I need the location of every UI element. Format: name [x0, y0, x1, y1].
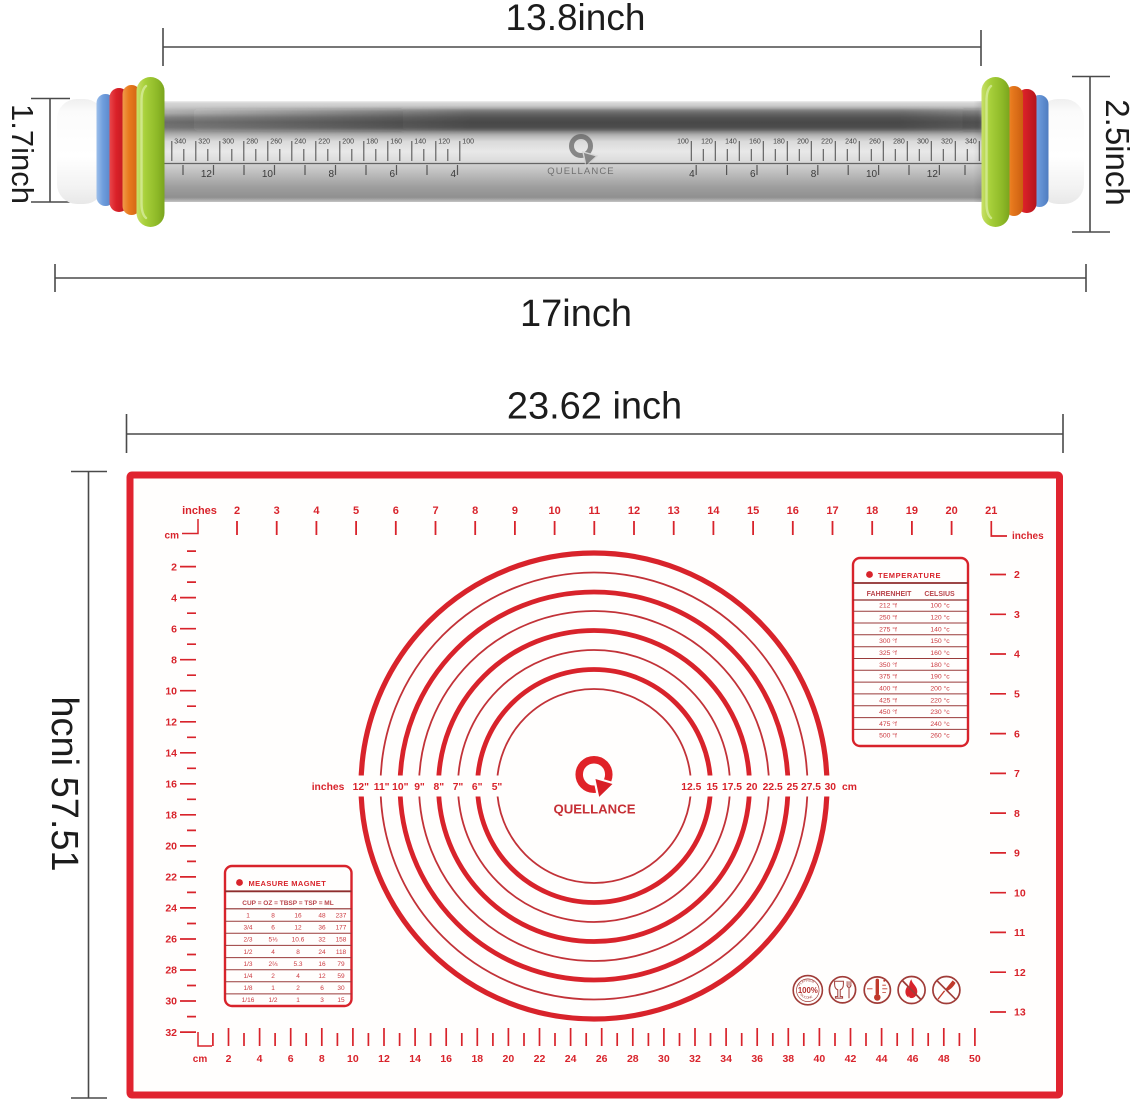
svg-text:5: 5: [1014, 689, 1020, 701]
svg-text:1/2: 1/2: [243, 949, 252, 956]
svg-text:177: 177: [336, 925, 347, 932]
svg-text:375 °f: 375 °f: [879, 673, 897, 681]
svg-text:24: 24: [318, 949, 326, 956]
svg-text:4: 4: [313, 505, 320, 517]
svg-text:24: 24: [165, 903, 177, 915]
svg-text:9": 9": [414, 782, 425, 793]
svg-text:26: 26: [596, 1053, 608, 1065]
svg-text:14: 14: [707, 505, 720, 517]
svg-text:CUP = OZ = TBSP = TSP = ML: CUP = OZ = TBSP = TSP = ML: [242, 900, 333, 907]
svg-text:5": 5": [492, 782, 503, 793]
svg-text:20: 20: [746, 782, 758, 793]
svg-text:160: 160: [390, 139, 402, 146]
svg-text:10: 10: [866, 169, 878, 180]
svg-text:30: 30: [337, 985, 345, 992]
svg-text:320: 320: [198, 139, 210, 146]
svg-text:23.62 inch: 23.62 inch: [507, 386, 682, 428]
svg-text:30: 30: [658, 1053, 670, 1065]
svg-text:120: 120: [438, 139, 450, 146]
svg-text:7": 7": [453, 782, 464, 793]
svg-text:14: 14: [409, 1053, 421, 1065]
svg-text:inches: inches: [182, 505, 217, 517]
svg-text:6: 6: [320, 985, 324, 992]
svg-text:1/4: 1/4: [243, 973, 252, 980]
svg-text:340: 340: [965, 139, 977, 146]
svg-text:475 °f: 475 °f: [879, 720, 897, 728]
svg-text:150 °c: 150 °c: [930, 637, 950, 645]
svg-text:100 °c: 100 °c: [930, 602, 950, 610]
svg-text:14: 14: [165, 748, 177, 760]
svg-text:22.5: 22.5: [763, 782, 783, 793]
svg-text:10: 10: [347, 1053, 359, 1065]
svg-text:5⅓: 5⅓: [268, 937, 278, 944]
svg-text:2.5inch: 2.5inch: [1099, 99, 1133, 205]
svg-text:8": 8": [433, 782, 444, 793]
svg-text:10": 10": [392, 782, 408, 793]
svg-text:18: 18: [866, 505, 878, 517]
svg-text:100: 100: [462, 139, 474, 146]
svg-text:200: 200: [342, 139, 354, 146]
svg-text:15: 15: [337, 997, 345, 1004]
svg-text:1: 1: [246, 912, 250, 919]
svg-text:140: 140: [725, 139, 737, 146]
svg-text:12: 12: [294, 925, 302, 932]
svg-text:12.5: 12.5: [681, 782, 701, 793]
svg-text:260: 260: [869, 139, 881, 146]
svg-text:17inch: 17inch: [520, 293, 632, 335]
svg-text:10: 10: [1014, 887, 1026, 899]
svg-text:400 °f: 400 °f: [879, 684, 897, 692]
svg-text:48: 48: [318, 912, 326, 919]
svg-text:4: 4: [450, 169, 456, 180]
svg-text:11": 11": [374, 782, 390, 793]
svg-text:12: 12: [1014, 967, 1026, 979]
svg-text:200 °c: 200 °c: [930, 684, 950, 692]
svg-text:QUELLANCE: QUELLANCE: [547, 166, 614, 177]
svg-text:6": 6": [472, 782, 483, 793]
svg-text:25: 25: [787, 782, 799, 793]
svg-text:500 °f: 500 °f: [879, 732, 897, 740]
svg-text:CELSIUS: CELSIUS: [924, 591, 955, 598]
svg-text:100: 100: [677, 139, 689, 146]
svg-text:5: 5: [353, 505, 359, 517]
svg-text:42: 42: [845, 1053, 857, 1065]
svg-text:2: 2: [271, 973, 275, 980]
svg-text:240 °c: 240 °c: [930, 720, 950, 728]
svg-text:inches: inches: [312, 782, 345, 793]
svg-text:16: 16: [787, 505, 799, 517]
svg-text:15: 15: [747, 505, 759, 517]
svg-text:120 °c: 120 °c: [930, 614, 950, 622]
svg-text:30: 30: [165, 996, 177, 1008]
svg-text:34: 34: [720, 1053, 732, 1065]
svg-text:32: 32: [689, 1053, 701, 1065]
svg-text:1: 1: [296, 997, 300, 1004]
svg-text:cm: cm: [842, 782, 857, 793]
svg-text:12: 12: [927, 169, 939, 180]
svg-text:FAHRENHEIT: FAHRENHEIT: [867, 591, 912, 598]
svg-text:450 °f: 450 °f: [879, 708, 897, 716]
svg-text:4: 4: [296, 973, 300, 980]
svg-text:2: 2: [296, 985, 300, 992]
svg-text:40: 40: [814, 1053, 826, 1065]
svg-text:425 °f: 425 °f: [879, 696, 897, 704]
svg-text:8: 8: [171, 654, 177, 666]
svg-text:4: 4: [1014, 649, 1020, 661]
svg-text:50: 50: [969, 1053, 981, 1065]
svg-text:20: 20: [945, 505, 957, 517]
svg-text:220 °c: 220 °c: [930, 696, 950, 704]
svg-text:300: 300: [917, 139, 929, 146]
svg-text:275 °f: 275 °f: [879, 625, 897, 633]
svg-text:21: 21: [985, 505, 997, 517]
svg-text:48: 48: [938, 1053, 950, 1065]
svg-text:11: 11: [1014, 927, 1025, 939]
svg-text:2: 2: [234, 505, 240, 517]
svg-text:8: 8: [271, 912, 275, 919]
svg-text:300: 300: [222, 139, 234, 146]
svg-text:16: 16: [440, 1053, 452, 1065]
svg-text:230 °c: 230 °c: [930, 708, 950, 716]
svg-text:6: 6: [271, 925, 275, 932]
svg-text:59: 59: [337, 973, 345, 980]
svg-text:3: 3: [320, 997, 324, 1004]
svg-text:120: 120: [701, 139, 713, 146]
svg-text:2: 2: [226, 1053, 232, 1065]
svg-text:30: 30: [825, 782, 837, 793]
svg-text:12: 12: [378, 1053, 390, 1065]
svg-text:28: 28: [627, 1053, 639, 1065]
svg-text:22: 22: [165, 872, 177, 884]
svg-text:6: 6: [393, 505, 399, 517]
svg-text:260 °c: 260 °c: [930, 732, 950, 740]
svg-text:240: 240: [294, 139, 306, 146]
svg-text:16: 16: [318, 961, 326, 968]
svg-text:180: 180: [366, 139, 378, 146]
svg-text:212 °f: 212 °f: [879, 602, 897, 610]
svg-text:240: 240: [845, 139, 857, 146]
svg-text:220: 220: [318, 139, 330, 146]
svg-text:160 °c: 160 °c: [930, 649, 950, 657]
svg-text:8: 8: [1014, 808, 1020, 820]
svg-text:44: 44: [876, 1053, 888, 1065]
svg-text:18: 18: [165, 810, 177, 822]
svg-text:280: 280: [246, 139, 258, 146]
svg-text:8: 8: [319, 1053, 325, 1065]
svg-text:350 °f: 350 °f: [879, 661, 897, 669]
svg-text:QUELLANCE: QUELLANCE: [554, 803, 636, 817]
svg-text:7: 7: [432, 505, 438, 517]
svg-text:12": 12": [353, 782, 369, 793]
svg-text:280: 280: [893, 139, 905, 146]
svg-text:250 °f: 250 °f: [879, 614, 897, 622]
svg-text:1.7inch: 1.7inch: [5, 104, 40, 204]
svg-text:28: 28: [165, 965, 177, 977]
svg-text:10: 10: [165, 685, 177, 697]
svg-text:36: 36: [318, 925, 326, 932]
svg-text:12: 12: [628, 505, 640, 517]
svg-text:6: 6: [288, 1053, 294, 1065]
svg-text:118: 118: [336, 949, 347, 956]
svg-text:180 °c: 180 °c: [930, 661, 950, 669]
svg-text:8: 8: [472, 505, 478, 517]
svg-text:158: 158: [336, 937, 347, 944]
svg-text:4: 4: [171, 592, 177, 604]
svg-text:27.5: 27.5: [801, 782, 821, 793]
svg-text:8: 8: [811, 169, 817, 180]
svg-text:1/3: 1/3: [243, 961, 252, 968]
svg-text:4: 4: [689, 169, 695, 180]
svg-text:220: 220: [821, 139, 833, 146]
svg-text:3: 3: [1014, 609, 1020, 621]
svg-text:hcni 57.51: hcni 57.51: [43, 696, 85, 871]
svg-text:4: 4: [257, 1053, 263, 1065]
svg-text:cm: cm: [165, 531, 180, 542]
svg-text:8: 8: [328, 169, 334, 180]
svg-text:6: 6: [171, 623, 177, 635]
svg-text:300 °f: 300 °f: [879, 637, 897, 645]
svg-text:12: 12: [201, 169, 213, 180]
svg-text:2: 2: [171, 561, 177, 573]
svg-text:1/2: 1/2: [268, 997, 277, 1004]
svg-text:11: 11: [588, 505, 600, 517]
svg-text:10: 10: [262, 169, 274, 180]
svg-text:cm: cm: [193, 1054, 208, 1065]
svg-text:15: 15: [706, 782, 718, 793]
svg-text:6: 6: [389, 169, 395, 180]
svg-text:260: 260: [270, 139, 282, 146]
svg-text:46: 46: [907, 1053, 919, 1065]
svg-text:16: 16: [165, 779, 177, 791]
svg-text:TEMPERATURE: TEMPERATURE: [878, 571, 941, 580]
svg-text:2⅔: 2⅔: [268, 961, 278, 968]
svg-text:20: 20: [165, 841, 177, 853]
svg-text:3/4: 3/4: [243, 925, 252, 932]
svg-text:38: 38: [782, 1053, 794, 1065]
svg-text:320: 320: [941, 139, 953, 146]
svg-text:17: 17: [826, 505, 838, 517]
svg-text:10: 10: [548, 505, 560, 517]
svg-text:140: 140: [414, 139, 426, 146]
svg-text:13: 13: [1014, 1007, 1026, 1019]
svg-text:13.8inch: 13.8inch: [506, 0, 646, 38]
svg-text:160: 160: [749, 139, 761, 146]
svg-text:2/3: 2/3: [243, 937, 252, 944]
svg-text:4: 4: [271, 949, 275, 956]
svg-text:9: 9: [512, 505, 518, 517]
svg-text:26: 26: [165, 934, 177, 946]
svg-text:6: 6: [750, 169, 756, 180]
svg-text:2: 2: [1014, 569, 1020, 581]
svg-text:22: 22: [534, 1053, 546, 1065]
svg-text:17.5: 17.5: [722, 782, 742, 793]
svg-text:79: 79: [337, 961, 345, 968]
svg-text:237: 237: [336, 912, 347, 919]
svg-text:3: 3: [274, 505, 280, 517]
svg-text:5.3: 5.3: [293, 961, 302, 968]
svg-text:inches: inches: [1012, 531, 1044, 542]
svg-text:32: 32: [318, 937, 326, 944]
svg-text:180: 180: [773, 139, 785, 146]
svg-text:140 °c: 140 °c: [930, 625, 950, 633]
svg-text:13: 13: [668, 505, 680, 517]
svg-text:325 °f: 325 °f: [879, 649, 897, 657]
svg-text:1: 1: [271, 985, 275, 992]
svg-text:200: 200: [797, 139, 809, 146]
svg-text:340: 340: [174, 139, 186, 146]
svg-text:1/8: 1/8: [243, 985, 252, 992]
svg-text:12: 12: [165, 717, 177, 729]
svg-text:MEASURE MAGNET: MEASURE MAGNET: [249, 879, 327, 888]
svg-text:12: 12: [318, 973, 326, 980]
svg-text:8: 8: [296, 949, 300, 956]
svg-text:19: 19: [906, 505, 918, 517]
svg-text:20: 20: [503, 1053, 515, 1065]
svg-text:190 °c: 190 °c: [930, 673, 950, 681]
svg-text:1/16: 1/16: [242, 997, 255, 1004]
svg-text:6: 6: [1014, 728, 1020, 740]
svg-text:10.6: 10.6: [292, 937, 305, 944]
svg-text:24: 24: [565, 1053, 577, 1065]
svg-text:18: 18: [471, 1053, 483, 1065]
svg-text:32: 32: [165, 1027, 177, 1039]
svg-text:16: 16: [294, 912, 302, 919]
svg-text:36: 36: [751, 1053, 763, 1065]
svg-text:9: 9: [1014, 848, 1020, 860]
svg-text:7: 7: [1014, 768, 1020, 780]
